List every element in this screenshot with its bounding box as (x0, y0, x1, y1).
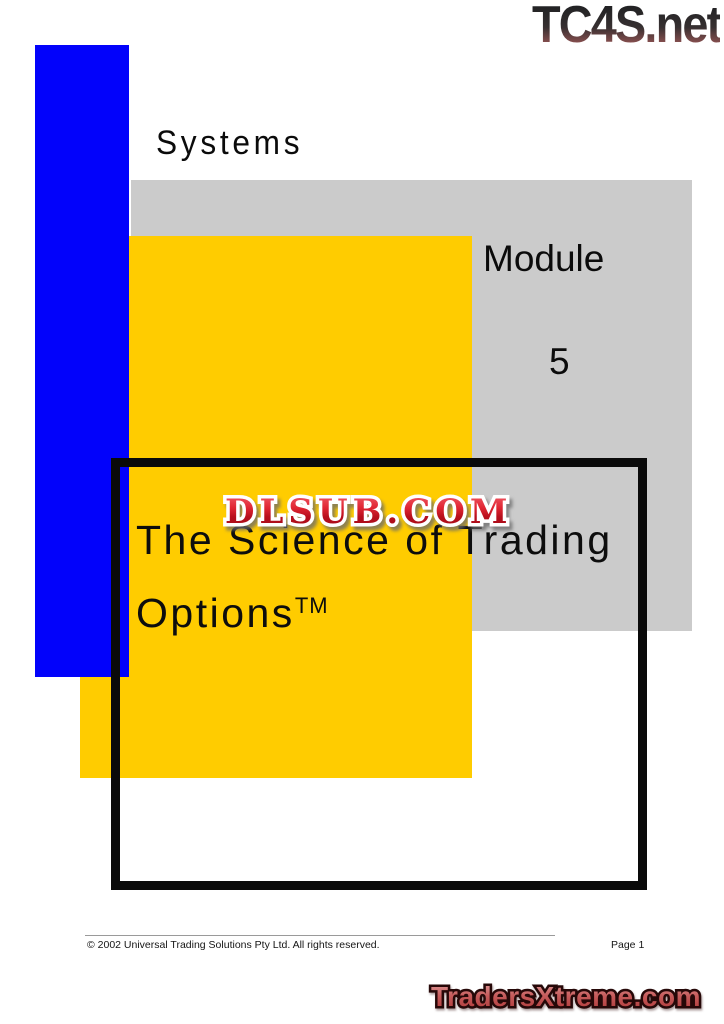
module-label: Module (483, 240, 604, 277)
document-page: TC4S.net Systems Module 5 The Science of… (0, 0, 724, 1024)
tradersxtreme-logo-fill: TradersXtreme.com (431, 981, 701, 1012)
tradersxtreme-watermark-logo: TradersXtreme.com TradersXtreme.com (431, 981, 701, 1013)
cover-title-line2-text: Options (136, 590, 295, 636)
trademark-superscript: TM (295, 593, 329, 618)
series-heading: Systems (156, 126, 303, 160)
dlsub-watermark-logo: DLSUB.COM DLSUB.COM (225, 492, 512, 532)
module-number: 5 (549, 343, 570, 380)
cover-title-line2: OptionsTM (136, 573, 613, 646)
footer-divider-line (85, 935, 555, 936)
footer-copyright: © 2002 Universal Trading Solutions Pty L… (87, 939, 380, 952)
footer-page-number: Page 1 (611, 939, 644, 952)
dlsub-logo-fill: DLSUB.COM (225, 492, 512, 532)
tc4s-watermark-logo: TC4S.net (532, 2, 720, 48)
